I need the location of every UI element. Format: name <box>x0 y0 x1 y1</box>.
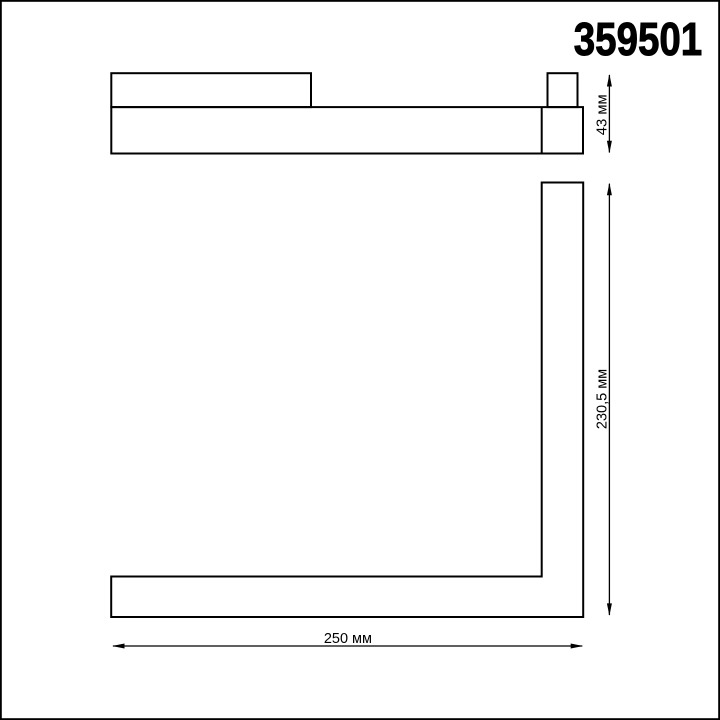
svg-text:43 мм: 43 мм <box>594 94 610 135</box>
svg-text:230,5 мм: 230,5 мм <box>594 369 610 429</box>
svg-text:250 мм: 250 мм <box>324 631 372 647</box>
svg-text:359501: 359501 <box>574 14 702 66</box>
